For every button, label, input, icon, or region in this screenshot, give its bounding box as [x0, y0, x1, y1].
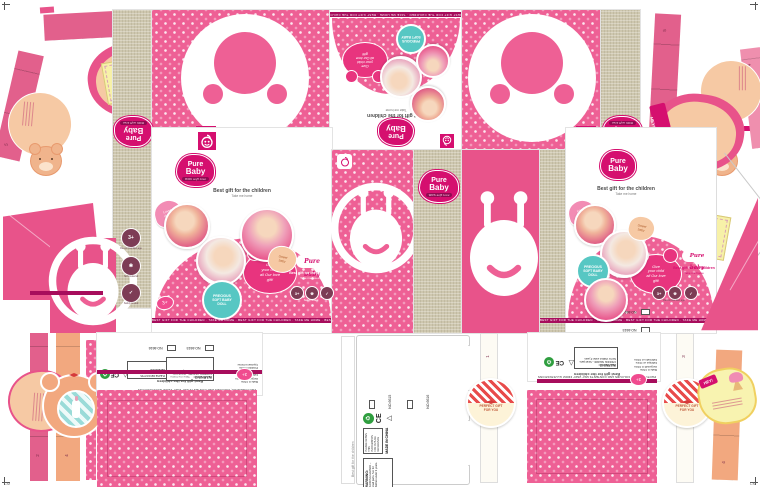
- brand-logo-flipped: Pure Baby With soft love: [114, 116, 153, 147]
- crop-mark: [755, 2, 756, 10]
- back-panel-flipped: PHOTOGRAPHS, COLOURS AND CONTENTS MAY VA…: [97, 333, 262, 395]
- giraffe-medallion: [330, 182, 422, 274]
- item-number: NO.6616: [149, 346, 163, 350]
- info-badge-label: Recommended age: [648, 299, 700, 302]
- bottom-bar: BEST GIFT FOR THE CHILDREN · TAKE ME HOM…: [152, 318, 332, 323]
- info-badge-label: Soft material: [113, 275, 149, 278]
- cert-icons: ♻ CE △: [363, 413, 393, 424]
- info-badge: 3+: [290, 286, 304, 300]
- bear-silhouette-head: [214, 32, 276, 94]
- age-blob: 3+: [236, 368, 253, 381]
- right-side-pink-panel: [462, 150, 540, 333]
- strip-number: 3: [681, 355, 686, 358]
- crease-line: [536, 399, 648, 474]
- feature-text: SOFT BABY: [401, 35, 421, 39]
- logo-baby: Baby: [186, 168, 206, 176]
- info-badge: ❀: [668, 286, 682, 300]
- script-logo: Pure baby: [296, 255, 328, 268]
- info-badge: ✓: [684, 286, 698, 300]
- handwriting-lines: [20, 98, 37, 129]
- bubble-text: Give: [343, 64, 387, 68]
- tagline: Best gift for the children: [130, 379, 230, 384]
- brand-logo: Pure Baby: [378, 118, 414, 146]
- packaging-dieline-sheet: CM CM 5 COME AND PLAY WITH US! HEY!! Pur…: [0, 0, 760, 487]
- teddy-bear-face: [30, 146, 62, 176]
- item-number: NO.6615: [187, 346, 201, 350]
- hey-label: HEY!: [698, 374, 718, 389]
- logo-baby: Baby: [124, 127, 144, 135]
- brand-logo: Pure Baby: [600, 150, 636, 180]
- brand-logo: Pure Baby With soft love: [176, 154, 215, 187]
- strip-number: 5: [4, 143, 9, 147]
- green-dot-icon: ♻: [544, 357, 554, 367]
- made-line: Hergestellt in China: [621, 364, 657, 367]
- warning-text: CHOKING HAZARD – Small parts. Not for ch…: [576, 357, 616, 363]
- feature-text: PRECIOUS: [402, 39, 420, 43]
- flipped-tagline: Best gift for the children: [552, 372, 642, 377]
- logo-baby: Baby: [386, 125, 406, 133]
- dome-tagline-sub: Take me home: [288, 276, 332, 280]
- narrow-flap: Best gift for the children: [341, 336, 355, 484]
- info-badge: ❀: [305, 286, 319, 300]
- feature-text: DOLL: [588, 273, 597, 277]
- info-badge-label: Safety tested: [286, 299, 336, 302]
- info-badge: ❀: [121, 256, 141, 276]
- dome-tagline: Best gift for the children: [672, 266, 716, 270]
- red-bow-icon: [69, 373, 79, 378]
- flap-tagline: Best gift for the children: [351, 441, 355, 477]
- feature-circle: PRECIOUS SOFT BABY DOLL: [202, 280, 242, 320]
- item-number-checkboxes: NO.6615 NO.6616: [363, 388, 437, 409]
- script-logo: Pure baby: [682, 250, 712, 262]
- strip-number: 4: [721, 461, 726, 464]
- strip-number: 5: [662, 29, 667, 32]
- brand-logo: Pure Baby With soft love: [419, 170, 459, 203]
- dome-tagline-sub: Take me home: [672, 271, 716, 275]
- warning-text: CHOKING HAZARD – Small parts. Not for ch…: [369, 460, 379, 487]
- age-blob: 3+: [630, 373, 647, 386]
- doll-photo: [584, 278, 628, 322]
- tagline-sub: Take me home: [152, 194, 332, 198]
- dome-tagline: Best gift for the children: [288, 271, 332, 275]
- info-badge: ✓: [320, 286, 334, 300]
- peach-tag-text: baby: [637, 228, 645, 233]
- notice-box: PLEASE RETAIN THIS INFORMATION FOR FUTUR…: [363, 428, 383, 454]
- strip-number: 4: [64, 454, 69, 457]
- tagline-sub: Take me home: [130, 375, 230, 379]
- doll-photo: [196, 236, 246, 286]
- belly-circle: [57, 390, 95, 428]
- bear-silhouette-ear: [490, 84, 510, 104]
- paint-drip: [512, 122, 522, 140]
- logo-baby: Baby: [608, 165, 628, 173]
- bear-silhouette-ear: [203, 84, 223, 104]
- crease-line: [107, 400, 247, 477]
- bear-muzzle: [39, 162, 53, 171]
- strip-number: 2: [35, 454, 40, 457]
- strip-end-mark: [40, 7, 54, 14]
- side-bar: [30, 291, 103, 295]
- info-badge-label: Recommended age: [113, 247, 149, 250]
- fold-line: [724, 153, 760, 209]
- recycle-triangle-icon: △: [385, 416, 393, 421]
- bottom-bar: BEST GIFT FOR THE CHILDREN · TAKE ME HOM…: [330, 12, 462, 17]
- logo-script: With soft love: [609, 122, 636, 126]
- item-number: NO.6616: [426, 395, 430, 409]
- logo-script: With soft love: [120, 122, 147, 126]
- handwriting-lines: [737, 63, 748, 93]
- feature-text: DOLL: [217, 302, 226, 306]
- hand-box-group: PLEASE RETAIN THIS INFORMATION FOR FUTUR…: [363, 428, 389, 454]
- item-number-checkboxes: NO.6615 NO.6616: [149, 339, 214, 357]
- bubble-text: gift!: [343, 52, 387, 56]
- handwriting-lines: [709, 395, 746, 412]
- sheet-label-cm-left: CM: [4, 481, 10, 486]
- peach-tag-text: baby: [278, 259, 286, 264]
- paint-drip: [540, 118, 550, 134]
- crop-mark: [4, 2, 5, 10]
- made-line: Fabricado en China: [621, 357, 657, 360]
- bear-medallion: [468, 14, 596, 142]
- info-badge: 3+: [121, 228, 141, 248]
- bubble-text: all Our love: [343, 56, 387, 60]
- made-line: Fabriqué en Chine: [621, 361, 657, 364]
- recycle-triangle-icon: △: [569, 359, 574, 367]
- warning-box: WARNING: CHOKING HAZARD – Small parts. N…: [574, 347, 618, 369]
- warning-title-text: WARNING:: [576, 363, 616, 367]
- round-tag-line2: FOR YOU: [468, 408, 514, 412]
- tagline: Best gift for the children: [552, 372, 642, 377]
- info-badge-label: Safety tested: [113, 302, 149, 305]
- ce-mark: CE: [556, 359, 564, 365]
- strip-number: 1: [485, 355, 490, 358]
- bear-silhouette-ear: [554, 84, 574, 104]
- item-number: NO.6615: [388, 395, 392, 409]
- logo-script: With soft love: [426, 193, 453, 197]
- red-bow-icon: [486, 400, 496, 405]
- linen-strip: [540, 150, 566, 333]
- green-dot-icon: ♻: [363, 413, 374, 424]
- bear-silhouette-ear: [267, 84, 287, 104]
- milk-bottle-icon: [72, 400, 80, 418]
- polka-lid-box: [527, 390, 657, 483]
- polka-lid-box: [97, 390, 257, 487]
- round-tag-text: PERFECT GIFT FOR YOU: [468, 404, 514, 412]
- sheet-label-cm-right: CM: [750, 481, 756, 486]
- bell-bear-icon: [440, 134, 454, 148]
- logo-pure: Pure: [388, 133, 404, 140]
- bear-eye: [39, 158, 41, 160]
- crop-mark: [750, 4, 758, 5]
- round-gift-tag: PERFECT GIFT FOR YOU: [466, 378, 516, 428]
- bear-eye: [51, 158, 53, 160]
- made-in-list: Made in China Hergestellt in China Fabri…: [621, 357, 657, 371]
- info-badge: ✓: [121, 283, 141, 303]
- brand-stamp-icon: [337, 154, 352, 169]
- flipped-tagline: Best gift for the children Take me home: [130, 375, 230, 384]
- side-back-panel-rotated: Made in China Hergestellt in China Fabri…: [356, 335, 470, 485]
- made-line: Сделано в Китае: [218, 363, 258, 366]
- bear-medallion: [181, 14, 309, 142]
- bubble-text: gift!: [631, 279, 681, 284]
- info-badge: 3+: [652, 286, 666, 300]
- ce-mark: CE: [376, 413, 383, 423]
- tagline-sub: Take me home: [566, 192, 686, 196]
- bubble-text: your child: [343, 60, 387, 64]
- bear-silhouette-head: [501, 32, 563, 94]
- made-line: Made in China: [621, 368, 657, 371]
- logo-script: With soft love: [182, 177, 209, 181]
- item-number: NO.6615: [623, 328, 637, 332]
- logo-pure: Pure: [126, 135, 142, 142]
- bear-ear: [40, 372, 60, 392]
- logo-baby: Baby: [429, 184, 449, 192]
- feature-circle: PRECIOUS SOFT BABY: [396, 24, 426, 54]
- warning-box: WARNING: CHOKING HAZARD – Small parts. N…: [363, 458, 393, 487]
- bell-bear-icon: [198, 132, 216, 150]
- bottle-nipple: [75, 396, 78, 401]
- made-in-china: MADE IN CHINA: [385, 428, 389, 454]
- red-bow-icon: [682, 400, 692, 405]
- top-front-panel-flipped: Pure Baby Best gift for the children Tak…: [330, 10, 462, 150]
